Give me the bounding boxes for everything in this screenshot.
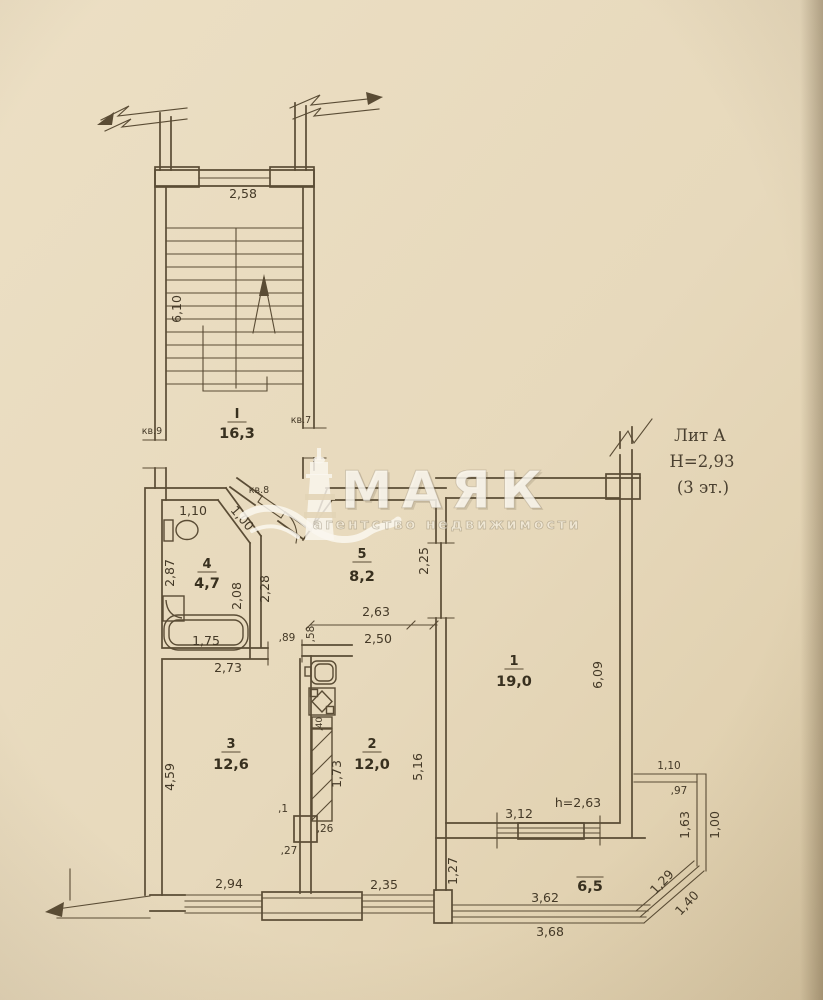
dim-hall-width-bottom: 2,50 bbox=[364, 631, 392, 646]
title-block: Лит А Н=2,93 (3 эт.) bbox=[670, 426, 735, 497]
dim-stair-width: 2,58 bbox=[229, 186, 257, 201]
room-area-living: 19,0 bbox=[496, 674, 532, 690]
room-area-balcony: 6,5 bbox=[577, 879, 603, 895]
dim-living-window: 3,12 bbox=[505, 806, 533, 821]
height-label: Н=2,93 bbox=[670, 452, 735, 471]
watermark-tagline: агентство недвижимости bbox=[313, 517, 581, 533]
dim-duct-height: 1,73 bbox=[329, 760, 344, 788]
dim-room3-top: 2,73 bbox=[214, 660, 242, 675]
dim-balcony-right-inner: 1,63 bbox=[677, 811, 692, 839]
room-area-stair: 16,3 bbox=[219, 426, 255, 442]
liter-label: Лит А bbox=[674, 426, 726, 445]
dim-note-1: ,1 bbox=[278, 803, 288, 815]
room-number-kitchen: 2 bbox=[367, 737, 376, 752]
dim-kitchen-right: 5,16 bbox=[410, 753, 425, 781]
dim-hall-width-top: 2,63 bbox=[362, 604, 390, 619]
label-flat-kv7: кв.7 bbox=[291, 415, 311, 426]
dim-living-depth: 6,09 bbox=[590, 661, 605, 689]
floor-plan-page: 2,58 6,10 I 16,3 кв.9 кв.7 кв.8 1,10 1,0… bbox=[0, 0, 823, 1000]
dim-ceiling-height: h=2,63 bbox=[555, 795, 601, 810]
room-area-bath: 4,7 bbox=[194, 576, 220, 592]
room-number-living: 1 bbox=[509, 654, 518, 669]
dim-balcony-bottom-inner: 3,62 bbox=[531, 890, 559, 905]
dim-balcony-bottom-outer: 3,68 bbox=[536, 924, 564, 939]
dim-bath-left: 2,87 bbox=[162, 559, 177, 587]
dim-hall-jamb: ,58 bbox=[305, 626, 317, 643]
dim-room3-left: 4,59 bbox=[162, 763, 177, 791]
dim-balcony-top: 1,10 bbox=[657, 760, 680, 772]
dim-balcony-left: 1,27 bbox=[445, 857, 460, 885]
label-flat-kv9: кв.9 bbox=[142, 426, 162, 437]
dim-balcony-offset: ,97 bbox=[671, 785, 688, 797]
room-number-stair: I bbox=[235, 407, 240, 422]
dim-bath-outer-right: 2,28 bbox=[257, 575, 272, 603]
dim-bath-inner-right: 2,08 bbox=[229, 582, 244, 610]
dim-stair-flight: 6,10 bbox=[169, 295, 184, 323]
room-number-bath: 4 bbox=[202, 557, 211, 572]
dim-kitchen-bottom: 2,35 bbox=[370, 877, 398, 892]
dim-note-26: ,26 bbox=[317, 823, 334, 835]
room-number-hall: 5 bbox=[357, 547, 366, 562]
floor-plan-drawing: 2,58 6,10 I 16,3 кв.9 кв.7 кв.8 1,10 1,0… bbox=[0, 0, 823, 1000]
room-area-kitchen: 12,0 bbox=[354, 757, 390, 773]
dim-bath-top: 1,10 bbox=[179, 503, 207, 518]
floor-label: (3 эт.) bbox=[677, 478, 729, 497]
label-flat-kv8: кв.8 bbox=[249, 485, 269, 496]
dim-hall-length: 2,25 bbox=[416, 547, 431, 575]
room-area-hall: 8,2 bbox=[349, 569, 375, 585]
dim-duct-width: ,40 bbox=[315, 717, 325, 732]
room-area-3: 12,6 bbox=[213, 757, 249, 773]
dim-note-27: ,27 bbox=[281, 845, 298, 857]
dim-balcony-right-outer: 1,00 bbox=[707, 811, 722, 839]
dim-room3-bottom: 2,94 bbox=[215, 876, 243, 891]
dim-hall-door: ,89 bbox=[279, 632, 296, 644]
dim-bathtub: 1,75 bbox=[192, 633, 220, 648]
room-number-3: 3 bbox=[226, 737, 235, 752]
watermark-brand: МАЯК bbox=[341, 461, 552, 521]
